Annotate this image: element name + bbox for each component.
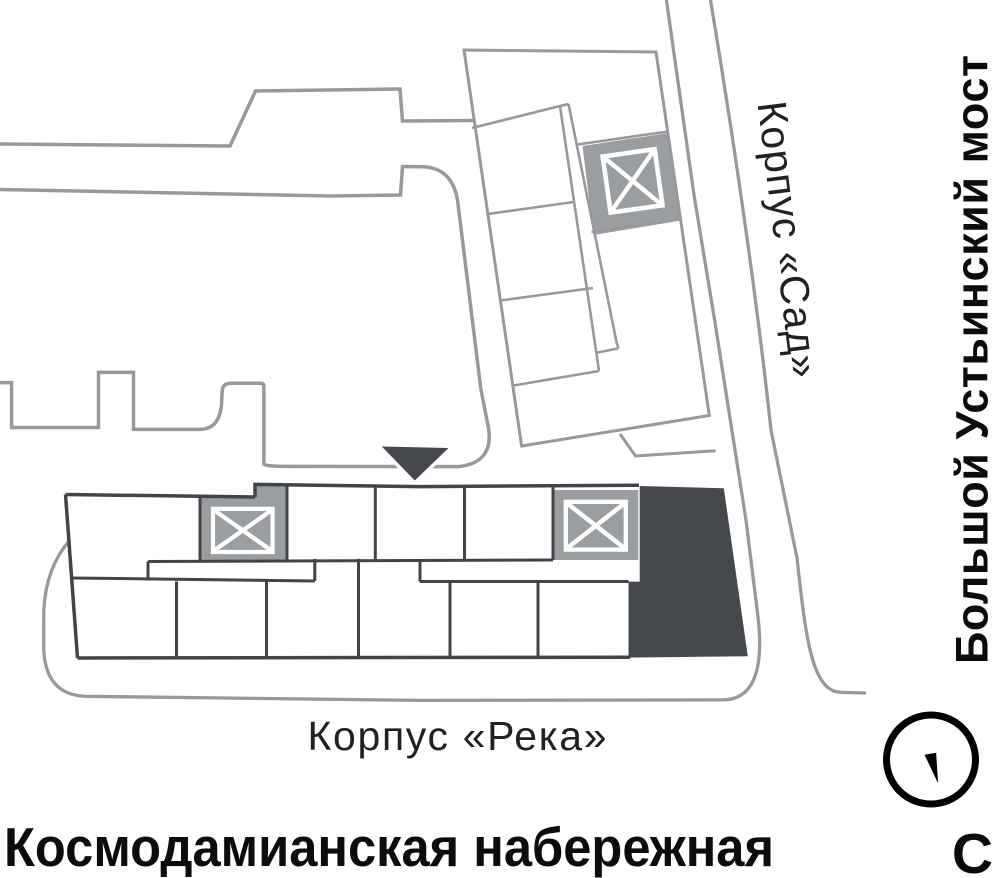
- svg-text:Корпус «Река»: Корпус «Река»: [308, 713, 607, 759]
- svg-text:Космодамианская набережная: Космодамианская набережная: [4, 816, 774, 878]
- svg-text:С: С: [952, 822, 993, 878]
- svg-text:Большой Устьинский мост: Большой Устьинский мост: [947, 55, 998, 664]
